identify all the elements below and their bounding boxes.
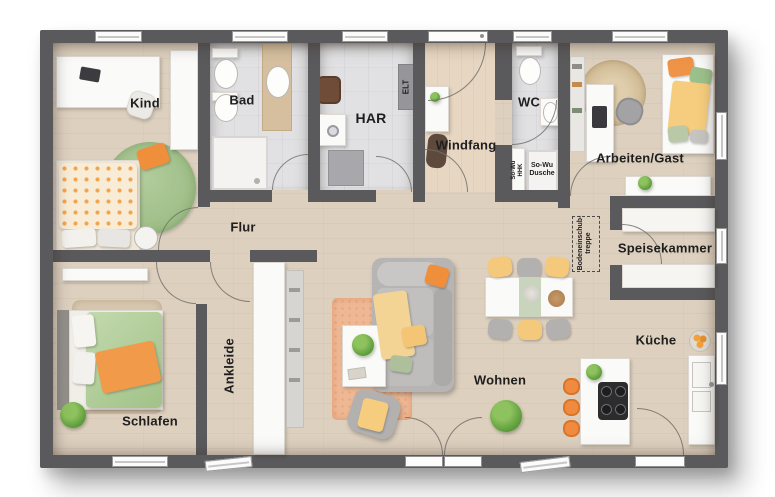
sofa-yellow-cushion xyxy=(400,324,427,348)
window-wc xyxy=(513,31,552,42)
schlafen-plant xyxy=(60,402,86,428)
room-label-windfang: Windfang xyxy=(436,138,497,153)
window-ankleide xyxy=(205,456,253,472)
room-label-arbeiten-gast: Arbeiten/Gast xyxy=(596,151,684,166)
room-label-bad: Bad xyxy=(229,93,254,108)
cooktop-burner-4 xyxy=(615,404,626,415)
ankleide-wardrobe xyxy=(253,262,285,455)
terrace-door-right xyxy=(444,456,482,467)
kitchen-cooktop xyxy=(598,382,628,420)
annotation-elt: ELT xyxy=(401,80,410,95)
room-label-kueche: Küche xyxy=(636,333,677,348)
kind-bed-pillow xyxy=(61,228,96,248)
wall xyxy=(196,304,207,455)
kitchen-fruit-bowl xyxy=(689,330,711,352)
window-har xyxy=(342,31,388,42)
window-arbeiten xyxy=(612,31,668,42)
dining-bowl xyxy=(548,290,565,307)
annotation-loft-ladder: Bodeneinschub- treppe xyxy=(577,216,593,271)
window-bad xyxy=(232,31,288,42)
kind-bed-pillow-2 xyxy=(98,228,131,248)
annotation-so-wu-hhk: So-Wu HHK xyxy=(511,161,525,180)
wall xyxy=(610,196,728,208)
dining-chair-6 xyxy=(545,318,571,340)
window-kind xyxy=(95,31,142,42)
wohnen-plant xyxy=(490,400,522,432)
bad-toilet-tank xyxy=(212,48,238,58)
wc-toilet-tank xyxy=(516,46,542,56)
terrace-door-left xyxy=(405,456,443,467)
dining-chair xyxy=(487,255,514,278)
window-schlafen xyxy=(112,456,168,467)
wall xyxy=(198,43,210,207)
window-kueche xyxy=(716,332,727,385)
kitchen-stool xyxy=(563,378,580,395)
dining-chair-4 xyxy=(487,318,513,340)
floorplan: Kind Bad HAR Windfang WC Arbeiten/Gast F… xyxy=(40,30,728,468)
kitchen-stool-3 xyxy=(563,420,580,437)
wall xyxy=(610,288,728,300)
schlafen-headboard xyxy=(57,310,69,410)
coffee-table-plant xyxy=(352,334,374,356)
dining-flowers xyxy=(523,285,540,302)
cooktop-burner xyxy=(601,386,612,397)
window-wohnen xyxy=(520,456,571,473)
room-label-har: HAR xyxy=(356,110,387,126)
bad-toilet xyxy=(214,59,238,89)
schlafen-wall-shelf xyxy=(62,268,148,281)
wall xyxy=(198,250,210,262)
entrance-door-handle xyxy=(480,34,484,38)
wc-toilet xyxy=(519,57,541,85)
cooktop-burner-3 xyxy=(601,404,612,415)
entrance-door xyxy=(428,31,488,42)
flur-shelf-ladder xyxy=(289,288,300,408)
room-label-kind: Kind xyxy=(130,96,160,111)
har-storage-box xyxy=(328,150,364,186)
kitchen-stool-2 xyxy=(563,399,580,416)
schlafen-pillow-2 xyxy=(72,351,96,384)
window-speisekammer xyxy=(716,228,727,264)
room-label-schlafen: Schlafen xyxy=(122,414,178,429)
wall xyxy=(210,190,272,202)
wall xyxy=(413,43,425,202)
schlafen-pillow xyxy=(71,314,96,348)
wall xyxy=(610,208,622,230)
cooktop-burner-2 xyxy=(615,386,626,397)
dining-chair-3 xyxy=(544,256,570,279)
arbeiten-plant xyxy=(638,176,652,190)
bad-shower-drain xyxy=(254,178,260,184)
wall xyxy=(250,250,317,262)
bad-vanity-basin xyxy=(266,66,290,98)
dining-chair-5 xyxy=(518,320,542,340)
room-label-flur: Flur xyxy=(230,220,255,235)
kitchen-island-plant xyxy=(586,364,602,380)
dining-chair-2 xyxy=(517,258,541,278)
har-laundry-basket xyxy=(317,76,341,104)
annotation-so-wu-dusche: So-Wu Dusche xyxy=(529,162,554,178)
kitchen-sink-2 xyxy=(692,391,711,412)
wall xyxy=(53,250,198,262)
sofa-sage-cushion xyxy=(389,355,413,374)
arbeiten-bookshelf xyxy=(570,56,585,152)
arbeiten-shelf-books-2 xyxy=(572,82,582,87)
wall xyxy=(558,43,570,208)
daybed-gray-pillow xyxy=(690,129,709,143)
wall xyxy=(308,43,320,202)
room-label-speisekammer: Speisekammer xyxy=(618,241,712,256)
daybed-sage-pillow xyxy=(667,125,689,143)
kueche-terrace-door xyxy=(635,456,685,467)
floorplan-canvas: Kind Bad HAR Windfang WC Arbeiten/Gast F… xyxy=(0,0,775,497)
window-arbeiten-east xyxy=(716,112,727,160)
wall xyxy=(320,190,376,202)
arbeiten-shelf-books-3 xyxy=(572,108,582,113)
arbeiten-shelf-books xyxy=(572,64,582,69)
speisekammer-shelf-bottom xyxy=(622,264,715,288)
wall xyxy=(495,43,512,100)
wall xyxy=(495,190,570,202)
room-label-wc: WC xyxy=(518,95,540,110)
room-label-wohnen: Wohnen xyxy=(474,373,526,388)
sofa-right-backrest xyxy=(434,288,452,386)
arbeiten-laptop xyxy=(592,106,607,128)
har-washer-door xyxy=(327,125,339,137)
kitchen-faucet xyxy=(709,382,714,387)
wall xyxy=(610,265,622,288)
kind-bed-duvet xyxy=(59,163,137,229)
kind-pouf xyxy=(134,226,158,250)
room-label-ankleide: Ankleide xyxy=(222,338,237,394)
kind-wardrobe xyxy=(170,50,198,150)
